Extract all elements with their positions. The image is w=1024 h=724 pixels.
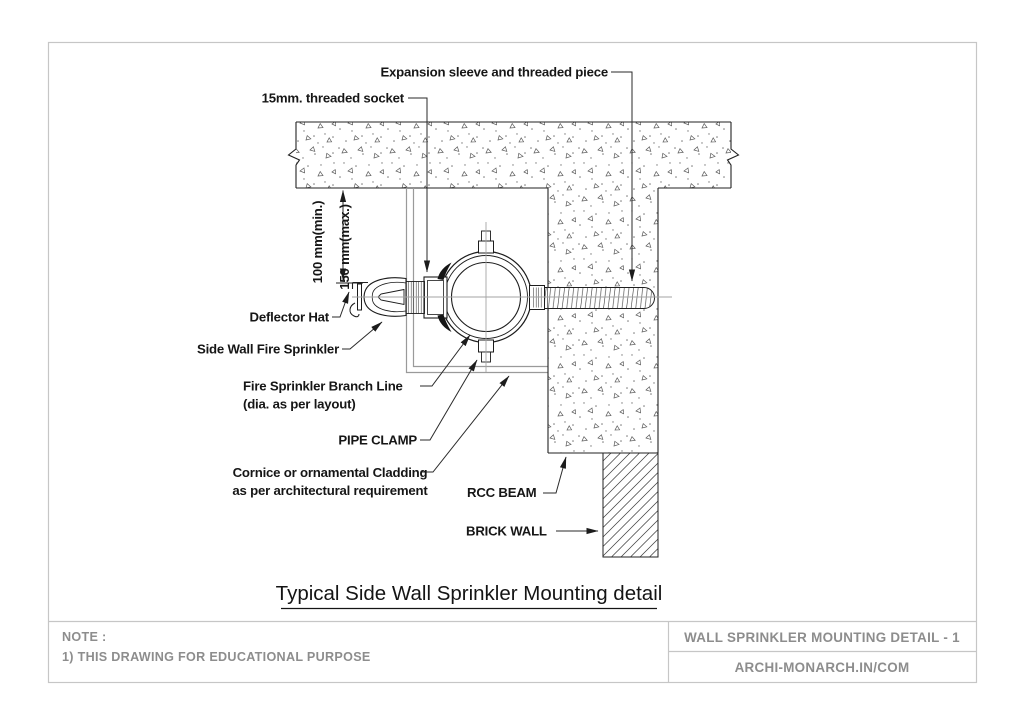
title-block: NOTE : 1) THIS DRAWING FOR EDUCATIONAL P… (62, 630, 960, 675)
expansion-sleeve-rod (545, 288, 655, 309)
dim-min-label: 100 mm(min.) (310, 201, 325, 284)
note-heading: NOTE : (62, 630, 106, 644)
detail-drawing-svg: 100 mm(min.) 150 mm(max.) Expansion slee… (0, 0, 1024, 724)
label-expansion-sleeve: Expansion sleeve and threaded piece (380, 65, 608, 80)
rod-connector (530, 286, 545, 310)
label-side-wall-sprinkler: Side Wall Fire Sprinkler (197, 342, 339, 357)
drawing-title: Typical Side Wall Sprinkler Mounting det… (276, 582, 663, 605)
threaded-socket (406, 277, 448, 318)
label-cornice-2: as per architectural requirement (232, 483, 428, 498)
label-cornice-1: Cornice or ornamental Cladding (233, 465, 428, 480)
rcc-beam-body (548, 188, 658, 453)
leader-branch-line (420, 335, 470, 386)
sheet-title: WALL SPRINKLER MOUNTING DETAIL - 1 (684, 630, 960, 645)
leader-side-wall-sprinkler (342, 322, 382, 349)
sheet-source: ARCHI-MONARCH.IN/COM (735, 660, 910, 675)
label-threaded-socket: 15mm. threaded socket (262, 91, 405, 106)
dimension-mounting-height: 100 mm(min.) 150 mm(max.) (310, 191, 363, 290)
label-branch-line-2: (dia. as per layout) (243, 397, 356, 412)
leader-deflector-hat (332, 292, 349, 317)
drawing-sheet: 100 mm(min.) 150 mm(max.) Expansion slee… (0, 0, 1024, 724)
label-rcc-beam: RCC BEAM (467, 485, 537, 500)
label-branch-line-1: Fire Sprinkler Branch Line (243, 379, 403, 394)
label-brick-wall: BRICK WALL (466, 524, 547, 539)
note-line-1: 1) THIS DRAWING FOR EDUCATIONAL PURPOSE (62, 650, 371, 664)
label-pipe-clamp: PIPE CLAMP (338, 433, 417, 448)
dim-max-label: 150 mm(max.) (337, 204, 352, 290)
sprinkler-threads (406, 282, 425, 314)
drawing-title-group: Typical Side Wall Sprinkler Mounting det… (276, 582, 663, 609)
leader-rcc-beam (543, 457, 566, 493)
brick-wall-body (603, 453, 658, 557)
label-deflector-hat: Deflector Hat (250, 310, 330, 325)
leader-cornice (421, 376, 509, 472)
